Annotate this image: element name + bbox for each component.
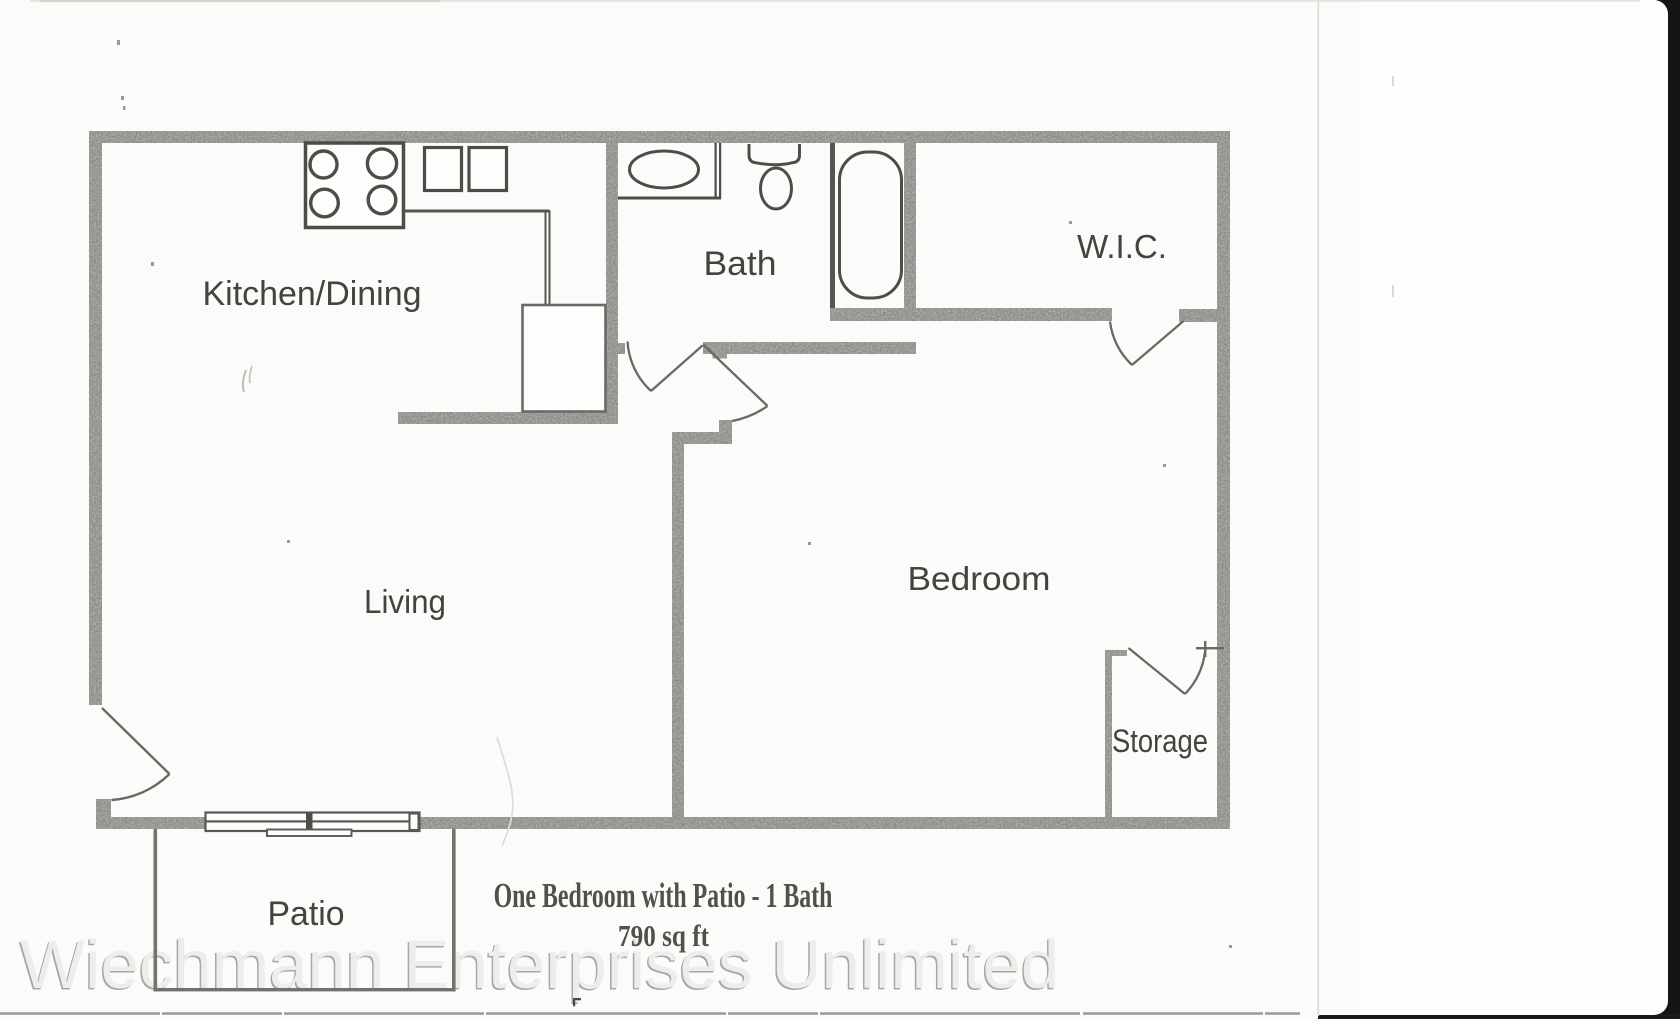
- svg-text:Bath: Bath: [704, 245, 777, 283]
- svg-text:Storage: Storage: [1112, 723, 1208, 759]
- svg-text:Kitchen/Dining: Kitchen/Dining: [203, 275, 422, 313]
- svg-text:Patio: Patio: [268, 895, 345, 933]
- svg-text:790 sq ft: 790 sq ft: [618, 920, 709, 954]
- svg-text:Wiechmann Enterprises Unlimite: Wiechmann Enterprises Unlimited: [20, 926, 1059, 1003]
- svg-text:One Bedroom with Patio - 1 Bat: One Bedroom with Patio - 1 Bath: [494, 877, 833, 916]
- svg-text:Living: Living: [364, 583, 446, 620]
- svg-text:W.I.C.: W.I.C.: [1077, 228, 1167, 265]
- svg-text:Bedroom: Bedroom: [908, 560, 1051, 597]
